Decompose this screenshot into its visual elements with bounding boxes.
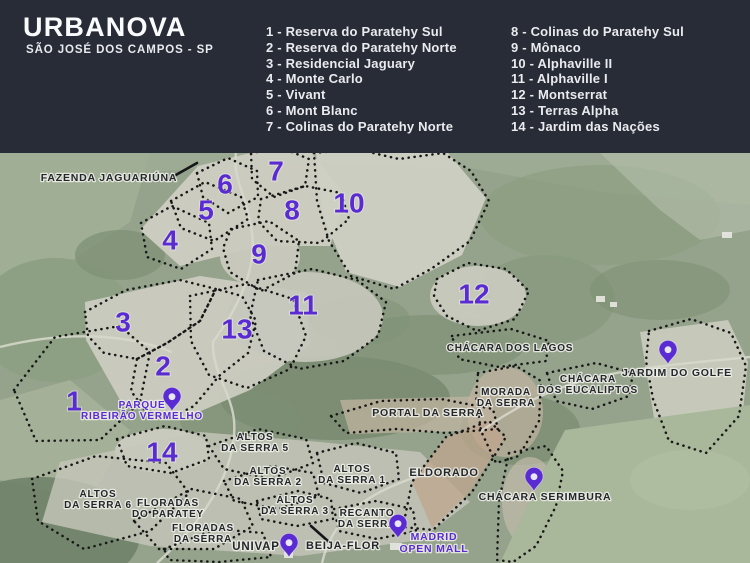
legend-item: 5 - Vivant xyxy=(266,87,457,103)
map-label-floradas-da-serra: FLORADASDA SERRA xyxy=(172,523,234,545)
region-number-5: 5 xyxy=(198,195,214,226)
map-label-chacara-serimbura: CHÁCARA SERIMBURA xyxy=(479,490,612,503)
map-label-beija-flor: BEIJA-FLOR xyxy=(306,540,380,552)
urbanova-map-page: URBANOVA SÃO JOSÉ DOS CAMPOS - SP 1 - Re… xyxy=(0,0,750,563)
region-number-9: 9 xyxy=(251,239,267,270)
legend-item: 1 - Reserva do Paratehy Sul xyxy=(266,24,457,40)
map-label-univap: UNIVAP xyxy=(232,541,279,553)
legend-item: 3 - Residencial Jaguary xyxy=(266,56,457,72)
legend-item: 10 - Alphaville II xyxy=(511,56,684,72)
region-number-10: 10 xyxy=(333,188,364,219)
region-number-14: 14 xyxy=(146,437,178,468)
legend-item: 12 - Montserrat xyxy=(511,87,684,103)
legend-item: 14 - Jardim das Nações xyxy=(511,119,684,135)
legend-column-2: 8 - Colinas do Paratehy Sul9 - Mônaco10 … xyxy=(511,24,684,135)
region-number-13: 13 xyxy=(221,314,252,345)
legend-item: 11 - Alphaville I xyxy=(511,71,684,87)
map-label-eldorado: ELDORADO xyxy=(409,467,478,479)
map-label-chacara-dos-lagos: CHÁCARA DOS LAGOS xyxy=(447,341,574,354)
legend-item: 2 - Reserva do Paratehy Norte xyxy=(266,40,457,56)
legend-item: 7 - Colinas do Paratehy Norte xyxy=(266,119,457,135)
map-label-fazenda-jaguariuna: FAZENDA JAGUARIÚNA xyxy=(41,171,178,184)
map-label-floradas-do-paratey: FLORADASDO PARATEY xyxy=(132,498,204,520)
legend-item: 13 - Terras Alpha xyxy=(511,103,684,119)
legend-item: 6 - Mont Blanc xyxy=(266,103,457,119)
map-label-morada-da-serra: MORADADA SERRA xyxy=(477,387,535,409)
region-number-6: 6 xyxy=(217,169,233,200)
region-number-7: 7 xyxy=(268,156,284,187)
header: URBANOVA SÃO JOSÉ DOS CAMPOS - SP 1 - Re… xyxy=(0,0,750,153)
map-label-portal-da-serra: PORTAL DA SERRA xyxy=(372,407,484,419)
page-title: URBANOVA xyxy=(23,12,187,43)
legend-column-1: 1 - Reserva do Paratehy Sul2 - Reserva d… xyxy=(266,24,457,135)
region-number-11: 11 xyxy=(288,290,318,321)
region-number-12: 12 xyxy=(458,279,489,310)
map-label-jardim-do-golfe: JARDIM DO GOLFE xyxy=(622,367,732,379)
satellite-map: FAZENDA JAGUARIÚNACHÁCARA DOS LAGOSMORAD… xyxy=(0,153,750,563)
region-number-2: 2 xyxy=(155,351,171,382)
legend-item: 4 - Monte Carlo xyxy=(266,71,457,87)
region-number-8: 8 xyxy=(284,195,300,226)
legend-item: 9 - Mônaco xyxy=(511,40,684,56)
page-subtitle: SÃO JOSÉ DOS CAMPOS - SP xyxy=(26,44,214,56)
region-number-3: 3 xyxy=(115,307,131,338)
legend-item: 8 - Colinas do Paratehy Sul xyxy=(511,24,684,40)
region-number-1: 1 xyxy=(66,386,82,417)
map-label-recanto-da-serra: RECANTODA SERRA xyxy=(338,508,396,530)
region-number-4: 4 xyxy=(162,225,178,256)
